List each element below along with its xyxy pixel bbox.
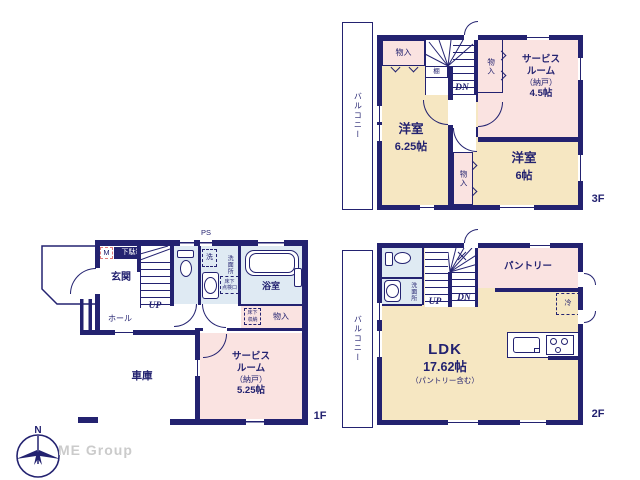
entrance-label: 玄関: [104, 270, 138, 284]
washbasin-bowl-1f: [204, 277, 217, 294]
floor-hatch: 床下 点検口: [220, 276, 239, 294]
wall: [548, 356, 583, 360]
door-opening: [464, 35, 478, 40]
ldk-size: 17.62帖: [423, 360, 467, 376]
wall: [80, 330, 200, 335]
floorplan-canvas: バルコニー DN 棚 物入 物入 サービス: [0, 0, 640, 480]
window: [200, 240, 212, 246]
window: [377, 106, 382, 122]
service-room-3f-label: サービス ルーム （納戸） 4.5帖: [505, 46, 577, 108]
window: [180, 240, 194, 246]
floor-hatch-line2: 点検口: [222, 285, 237, 292]
fridge-2f-label: 冷: [556, 293, 580, 315]
window: [420, 205, 434, 210]
door-arc: [584, 273, 596, 285]
service-room-1f-label: サービス ルーム （納戸） 5.25帖: [205, 341, 297, 407]
stove-burner: [561, 338, 568, 345]
floor-tag-2f: 2F: [586, 407, 610, 421]
toilet-bowl-2f: [394, 252, 411, 264]
door-arc: [174, 304, 197, 327]
floor-tag-1f: 1F: [308, 409, 332, 423]
hall-label: ホール: [106, 314, 134, 325]
wall: [448, 272, 452, 307]
door-arc: [584, 311, 596, 323]
ldk-name: LDK: [428, 341, 462, 360]
gate-bars: [80, 299, 97, 331]
window: [448, 420, 478, 425]
balcony-3f-label: バルコニー: [349, 80, 365, 152]
room-b-3f-name: 洋室: [498, 151, 550, 167]
service-room-1f-line4: 5.25帖: [237, 385, 265, 397]
underfloor-storage: 床下 収納: [244, 308, 261, 325]
bathroom-label: 浴室: [252, 280, 290, 293]
window: [500, 205, 534, 210]
pipe-space-label: PS: [198, 228, 214, 239]
room-a-3f-size: 6.25帖: [385, 140, 437, 154]
wall: [478, 137, 583, 142]
stairs-down-label-2f: DN: [453, 293, 475, 304]
service-room-3f-line4: 4.5帖: [530, 88, 553, 100]
toilet-tank-2f: [385, 252, 393, 266]
ldk-label: LDK 17.62帖 （パントリー含む）: [405, 336, 485, 390]
washbasin-bowl-2f: [386, 284, 399, 298]
service-room-3f-line3: （納戸）: [525, 78, 557, 88]
door-arc: [464, 229, 478, 243]
door-opening: [464, 243, 478, 248]
door-arc: [464, 21, 478, 35]
meter-box-label: M: [100, 247, 113, 259]
stair-winder-2f: [448, 248, 478, 272]
kitchen-faucet-2f: [534, 348, 540, 353]
service-room-3f-line1: サービス: [522, 54, 560, 66]
window: [578, 58, 583, 80]
ldk-note: （パントリー含む）: [411, 376, 479, 385]
compass-north-label: N: [30, 424, 46, 436]
toilet-bowl-1f: [180, 260, 192, 277]
wall: [382, 304, 422, 306]
wall: [476, 95, 478, 102]
window: [246, 419, 264, 425]
balcony-2f-label: バルコニー: [349, 303, 365, 375]
closet-1f-label: 物入: [264, 311, 298, 323]
toilet-tank-1f: [177, 250, 194, 258]
bathtub-inner: [249, 253, 295, 273]
stairs-up-label-1f: UP: [144, 301, 166, 312]
window: [115, 330, 133, 335]
room-a-3f-name: 洋室: [385, 122, 437, 138]
stairs-down-label-3f: DN: [450, 83, 474, 94]
wall: [195, 328, 203, 331]
wall: [302, 240, 308, 425]
service-room-1f-line3: （納戸）: [235, 375, 267, 385]
window: [377, 303, 382, 320]
window: [527, 35, 549, 40]
floor-tag-3f: 3F: [586, 192, 610, 206]
door-arc: [202, 304, 226, 328]
stove-burner: [550, 338, 557, 345]
service-room-3f-line2: ルーム: [527, 66, 555, 78]
stove-burner: [555, 347, 561, 353]
closet-3f-topleft-label: 物入: [382, 40, 425, 66]
washroom-2f-label: 洗面所: [406, 279, 419, 305]
underfloor-storage-line2: 収納: [247, 317, 257, 324]
shelf-3f-label: 棚: [425, 66, 448, 78]
bath-door-mark: [294, 268, 302, 287]
door-opening: [578, 310, 583, 324]
window: [258, 240, 284, 246]
door-opening: [578, 272, 583, 287]
stair-winder-1f: [140, 246, 170, 262]
garage-label: 車庫: [126, 370, 158, 384]
laundry-label: 洗: [202, 249, 217, 267]
room-b-3f-size: 6帖: [498, 169, 550, 183]
window: [530, 243, 550, 248]
window: [377, 125, 382, 141]
garage-wall-stub: [78, 417, 98, 423]
pantry-2f-label: パントリー: [488, 260, 568, 274]
service-room-1f-line2: ルーム: [237, 363, 265, 375]
wall: [495, 288, 578, 292]
wall: [170, 419, 308, 425]
watermark: ME Group: [58, 442, 133, 458]
window: [377, 331, 382, 357]
window: [520, 420, 546, 425]
service-room-1f-line1: サービス: [232, 351, 270, 363]
stair-winder-3f: [425, 40, 474, 66]
stairs-up-label-2f: UP: [424, 297, 446, 308]
wall: [227, 328, 308, 331]
window: [578, 155, 583, 181]
